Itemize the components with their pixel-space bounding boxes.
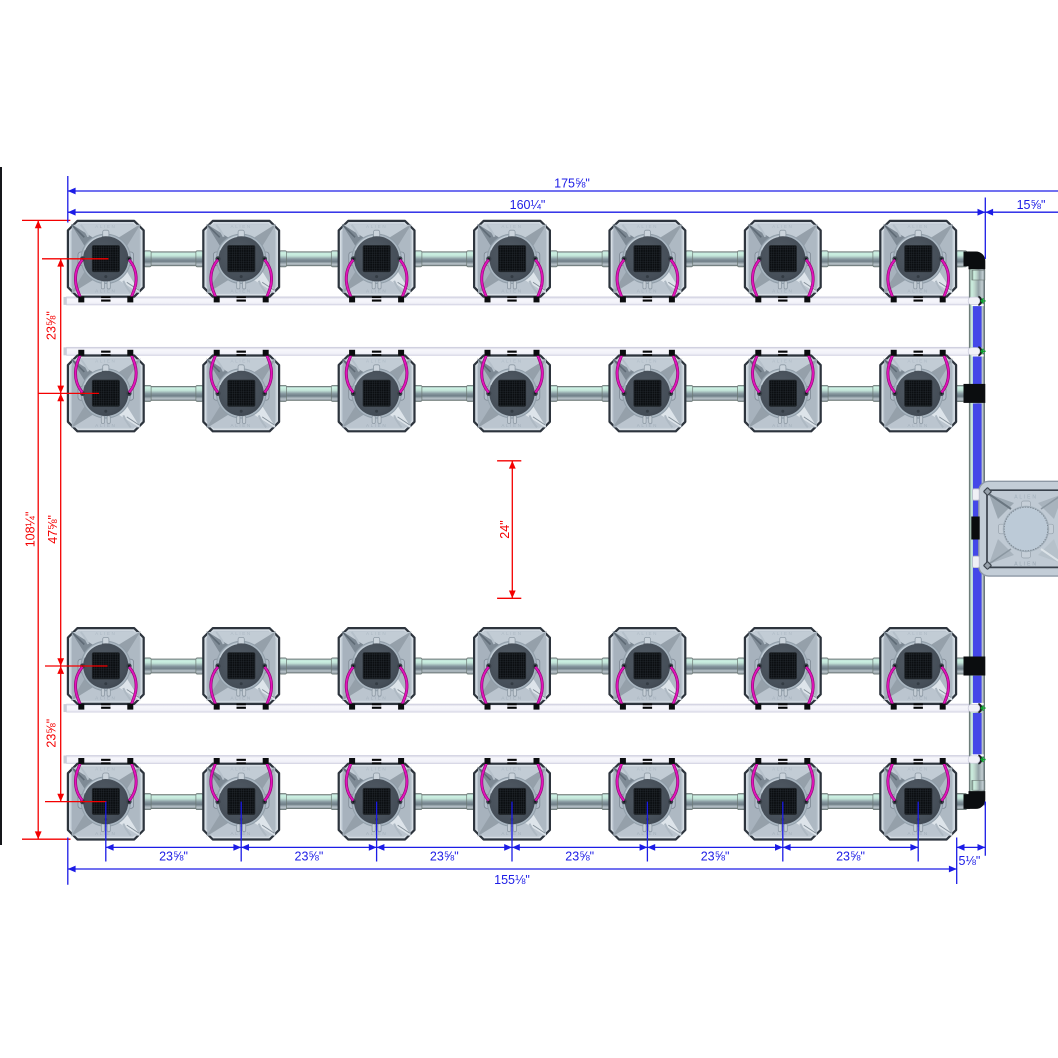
svg-text:108¼": 108¼" [23,512,37,548]
svg-text:23⅝": 23⅝" [159,850,188,864]
svg-text:ALIEN: ALIEN [1014,562,1037,568]
svg-text:160¼": 160¼" [510,198,546,212]
svg-text:23⅝": 23⅝" [836,850,865,864]
svg-text:47⅝": 47⅝" [46,515,60,544]
svg-text:23⅝": 23⅝" [701,850,730,864]
svg-text:23⅝": 23⅝" [44,311,58,340]
svg-text:23⅝": 23⅝" [44,719,58,748]
svg-text:ALIEN: ALIEN [1014,495,1037,501]
svg-text:23⅝": 23⅝" [565,850,594,864]
svg-text:155⅛": 155⅛" [494,873,530,887]
svg-text:15⅝": 15⅝" [1017,198,1046,212]
svg-text:23⅝": 23⅝" [295,850,324,864]
svg-text:23⅝": 23⅝" [430,850,459,864]
svg-text:175⅝": 175⅝" [554,177,590,191]
svg-text:5⅛": 5⅛" [959,854,981,868]
svg-text:24": 24" [498,520,512,538]
